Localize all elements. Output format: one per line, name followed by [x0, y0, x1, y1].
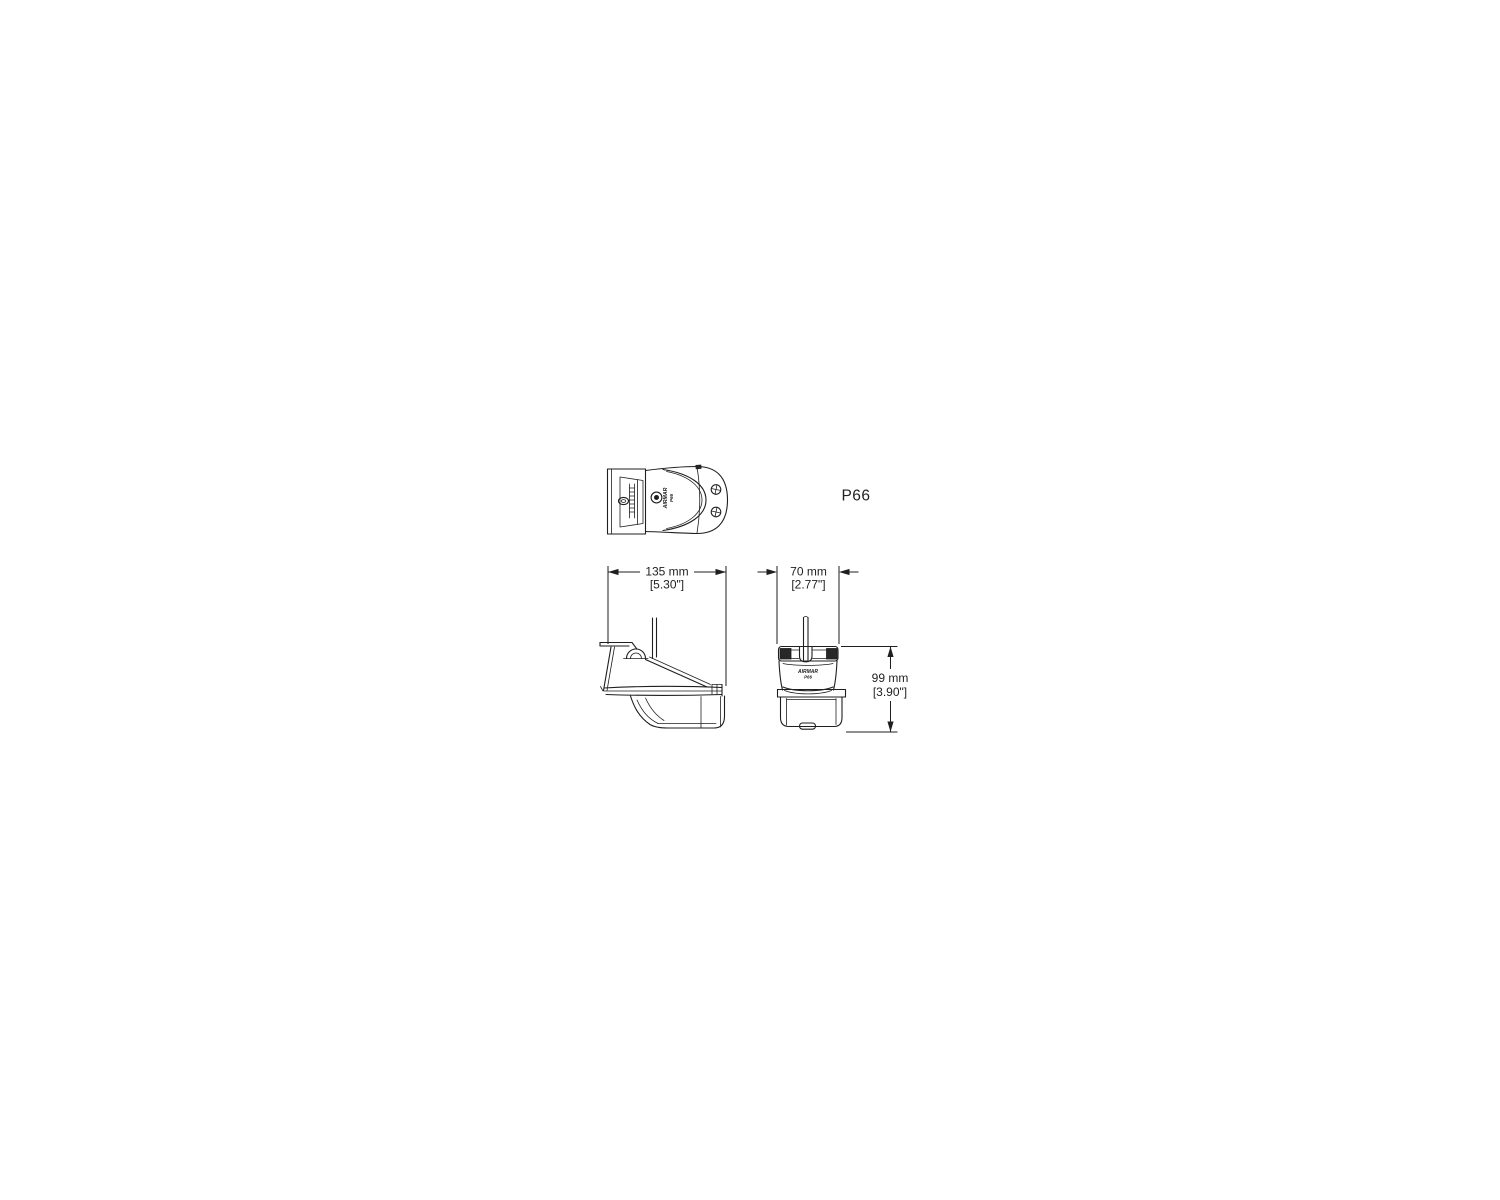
front-view-logo-model: P66: [804, 675, 812, 680]
top-view-logo: AIRMAR P66: [663, 487, 674, 509]
dimension-depth-imperial: [2.77"]: [791, 578, 825, 592]
side-view-hull: [631, 696, 725, 728]
serrated-strip: [630, 484, 635, 518]
side-view-bracket: [600, 643, 711, 692]
dimension-depth-metric: 70 mm: [790, 565, 827, 579]
product-label: P66: [841, 488, 870, 505]
dimension-height-imperial: [3.90"]: [873, 685, 907, 699]
pivot-screw-icon: [651, 492, 662, 503]
dimension-width-metric: 135 mm: [645, 565, 688, 579]
front-view-logo: AIRMAR P66: [797, 669, 818, 680]
front-view: 70 mm [2.77"] 99 mm [3.90"]: [758, 565, 909, 733]
front-view-skirt: [781, 697, 843, 729]
technical-drawing: AIRMAR P66 P66: [0, 0, 1500, 1200]
front-view-upper-body: AIRMAR P66: [779, 661, 837, 694]
cable: [804, 616, 809, 660]
dimension-height: 99 mm [3.90"]: [841, 647, 908, 733]
dimension-width: 135 mm [5.30"]: [608, 565, 726, 687]
drawing-canvas: AIRMAR P66 P66: [0, 0, 1500, 1200]
dimension-width-imperial: [5.30"]: [650, 578, 684, 592]
dimension-height-metric: 99 mm: [872, 671, 909, 685]
cable: [653, 618, 657, 659]
top-view-body: AIRMAR P66: [646, 465, 728, 533]
top-view-logo-model: P66: [669, 493, 674, 502]
phillips-screw-icon: [711, 507, 721, 517]
top-view: AIRMAR P66: [608, 465, 728, 534]
side-view: 135 mm [5.30"]: [600, 565, 726, 729]
top-view-bracket: [608, 469, 646, 534]
phillips-screw-icon: [711, 485, 721, 495]
